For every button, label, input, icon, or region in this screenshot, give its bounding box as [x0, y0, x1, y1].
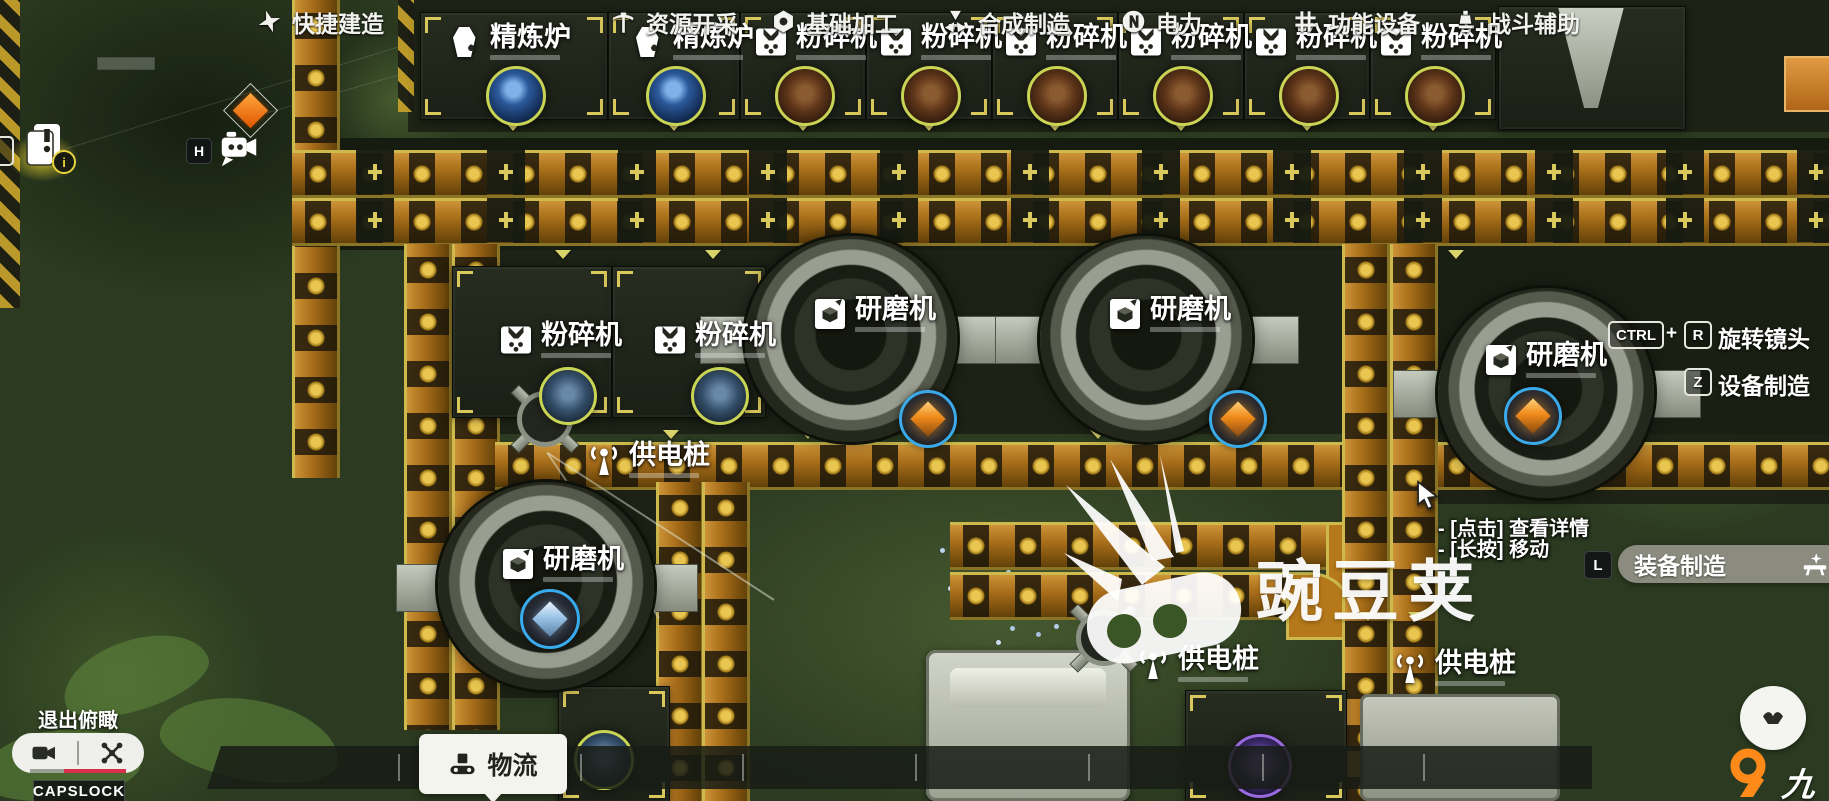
- conveyor-belt: [404, 244, 452, 730]
- tab-functional-devices[interactable]: 功能设备: [1292, 0, 1420, 43]
- product-slot-cube[interactable]: [1209, 390, 1267, 448]
- tab-label: 电力: [1156, 5, 1202, 39]
- machine-label[interactable]: 研磨机: [500, 546, 624, 582]
- material-slot-ore[interactable]: [539, 367, 597, 425]
- equip-craft-label: 装备制造: [1634, 547, 1790, 581]
- material-slot-ore[interactable]: [1279, 66, 1339, 126]
- machine-label[interactable]: 粉碎机: [652, 322, 776, 358]
- grinder-machine[interactable]: [438, 482, 654, 690]
- machine-name: 研磨机: [543, 544, 624, 574]
- tab-label: 合成制造: [978, 5, 1070, 39]
- pickaxe-icon: [610, 8, 637, 35]
- grinder-icon: [812, 296, 848, 332]
- flowers: [940, 548, 945, 553]
- power-pile-icon: [586, 442, 622, 478]
- material-slot-ore[interactable]: [1027, 66, 1087, 126]
- belt-junctions: [292, 198, 1829, 242]
- material-slot-ore[interactable]: [1153, 66, 1213, 126]
- faint-marker-bar: [97, 57, 155, 70]
- camera-mode-icon: [30, 740, 60, 766]
- equip-craft-button[interactable]: 装备制造: [1618, 545, 1829, 583]
- tab-quick-build[interactable]: 快捷建造: [256, 0, 384, 43]
- hazard-strip: [398, 0, 414, 112]
- rotate-camera-hint: 旋转镜头: [1718, 320, 1810, 354]
- build-toolbar: [207, 746, 1592, 789]
- drone-mode-icon: [97, 740, 127, 766]
- tab-divider: [915, 754, 917, 781]
- tab-synthesis[interactable]: 合成制造: [942, 0, 1070, 43]
- partial-key-badge: [0, 136, 14, 166]
- product-slot-cube[interactable]: [520, 589, 580, 649]
- machine-label[interactable]: 研磨机: [812, 296, 936, 332]
- tab-divider: [1423, 754, 1425, 781]
- tab-divider: [1088, 754, 1090, 781]
- view-mode-toggle[interactable]: [12, 733, 144, 773]
- grid-icon: [1292, 8, 1319, 35]
- grinder-icon: [1483, 342, 1519, 378]
- machine-label[interactable]: 精炼炉: [447, 24, 571, 60]
- crusher-icon: [1253, 24, 1289, 60]
- material-slot-ore[interactable]: [901, 66, 961, 126]
- tab-divider: [580, 754, 582, 781]
- machine-name: 粉碎机: [695, 320, 776, 350]
- mode-active-indicator: [64, 769, 126, 773]
- machine-subtitle: [1421, 55, 1491, 60]
- mode-track: [30, 769, 64, 773]
- refinery-icon: [447, 24, 483, 60]
- machine-subtitle: [543, 577, 613, 582]
- fan-blades-icon: [942, 8, 969, 35]
- machine-subtitle: [673, 55, 743, 60]
- machine-subtitle: [1178, 677, 1248, 682]
- crusher-icon: [652, 322, 688, 358]
- game-viewport: 精炼炉 精炼炉 粉碎机 粉碎机 粉碎机 粉碎机 粉碎机 粉碎机 粉碎机: [0, 0, 1829, 801]
- capslock-badge: CAPSLOCK: [33, 780, 125, 801]
- machine-subtitle: [1046, 55, 1116, 60]
- machine-label[interactable]: 供电桩: [1392, 650, 1516, 686]
- machine-subtitle: [796, 55, 866, 60]
- belt-chevron: [705, 250, 721, 259]
- material-slot-crystal[interactable]: [486, 66, 546, 126]
- product-slot-cube[interactable]: [1504, 387, 1562, 445]
- star-icon: [256, 8, 283, 35]
- mouse-cursor: [1411, 479, 1445, 513]
- machine-name: 精炼炉: [490, 22, 571, 52]
- workbench-icon: [1800, 549, 1829, 579]
- machine-subtitle: [1150, 327, 1220, 332]
- tab-divider: [742, 754, 744, 781]
- tab-resource-mining[interactable]: 资源开采: [610, 0, 738, 43]
- divider: [77, 741, 79, 765]
- tab-label: 战斗辅助: [1488, 5, 1580, 39]
- machine-subtitle: [541, 353, 611, 358]
- machine-subtitle: [1435, 681, 1505, 686]
- device-craft-hint: 设备制造: [1718, 367, 1810, 401]
- tab-logistics-selected[interactable]: 物流: [419, 734, 567, 794]
- tab-label: 功能设备: [1328, 5, 1420, 39]
- tab-divider: [1262, 754, 1264, 781]
- grinder-icon: [1107, 296, 1143, 332]
- machine-name: 粉碎机: [541, 320, 622, 350]
- key-ctrl-badge: CTRL: [1608, 321, 1664, 349]
- crusher-icon: [498, 322, 534, 358]
- tab-label: 物流: [487, 746, 537, 782]
- tab-label: 资源开采: [646, 5, 738, 39]
- machine-name: 供电桩: [629, 440, 710, 470]
- belt-chevron: [663, 430, 679, 439]
- tab-combat-support[interactable]: 战斗辅助: [1452, 0, 1580, 43]
- plus-sign: +: [1666, 323, 1677, 345]
- wandoujia-logo-watermark: [1060, 455, 1260, 675]
- turret-icon: [1452, 8, 1479, 35]
- material-slot-ore[interactable]: [1405, 66, 1465, 126]
- machine-name: 供电桩: [1435, 648, 1516, 678]
- tab-power[interactable]: 电力: [1120, 0, 1202, 43]
- key-z-badge: Z: [1684, 368, 1712, 396]
- machine-name: 研磨机: [855, 294, 936, 324]
- material-slot-ore[interactable]: [775, 66, 835, 126]
- machine-label[interactable]: 研磨机: [1107, 296, 1231, 332]
- tab-label: 快捷建造: [292, 5, 384, 39]
- wandoujia-watermark-text: 豌豆荚: [1256, 538, 1484, 635]
- power-circle-icon: [1120, 8, 1147, 35]
- machine-subtitle: [629, 473, 699, 478]
- orange-crate: [1784, 56, 1829, 112]
- product-slot-cube[interactable]: [899, 390, 957, 448]
- machine-subtitle: [1171, 55, 1241, 60]
- material-slot-crystal[interactable]: [646, 66, 706, 126]
- hex-nut-icon: [770, 8, 797, 35]
- machine-subtitle: [1526, 373, 1596, 378]
- machine-subtitle: [695, 353, 765, 358]
- machine-subtitle: [855, 327, 925, 332]
- machine-subtitle: [921, 55, 991, 60]
- material-slot-ore[interactable]: [691, 367, 749, 425]
- info-badge: i: [52, 150, 76, 174]
- power-pile-icon: [1392, 650, 1428, 686]
- machine-name: 研磨机: [1150, 294, 1231, 324]
- exit-overview-label: 退出俯瞰: [38, 704, 118, 733]
- machine-label[interactable]: 粉碎机: [498, 322, 622, 358]
- grinder-icon: [500, 546, 536, 582]
- machine-name: 研磨机: [1526, 340, 1607, 370]
- tab-basic-processing[interactable]: 基础加工: [770, 0, 898, 43]
- tab-label: 基础加工: [806, 5, 898, 39]
- belt-chevron: [1448, 250, 1464, 259]
- machine-subtitle: [490, 55, 560, 60]
- key-l-badge: L: [1584, 551, 1612, 579]
- key-r-badge: R: [1684, 321, 1712, 349]
- tab-divider: [398, 754, 400, 781]
- nine-game-watermark-text: 九游: [1775, 758, 1829, 801]
- machine-subtitle: [1296, 55, 1366, 60]
- belt-junctions: [292, 150, 1829, 194]
- belt-chevron: [555, 250, 571, 259]
- conveyor-icon: [448, 750, 477, 779]
- nine-game-mark: [1722, 744, 1778, 801]
- site-logo-glyph: [1752, 698, 1794, 738]
- machine-label[interactable]: 研磨机: [1483, 342, 1607, 378]
- chat-cam-icon[interactable]: [216, 128, 262, 172]
- key-h-badge: H: [186, 138, 212, 164]
- machine-label[interactable]: 供电桩: [586, 442, 710, 478]
